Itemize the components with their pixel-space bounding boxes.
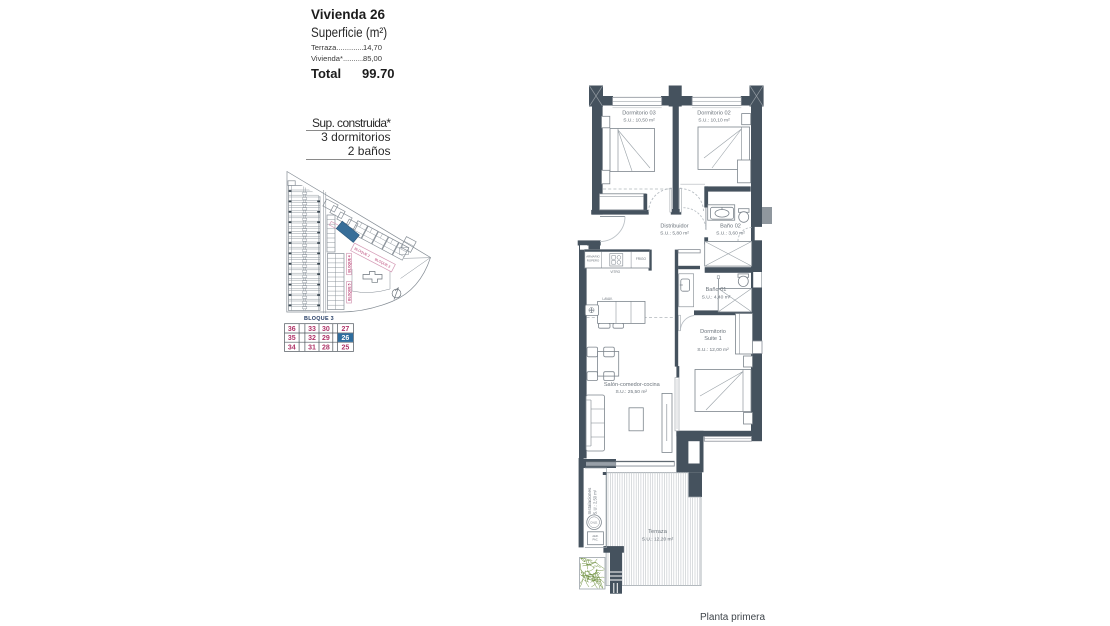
svg-text:AER.: AER. — [592, 534, 598, 538]
svg-text:32: 32 — [308, 335, 316, 342]
svg-text:Dormitorio 02: Dormitorio 02 — [697, 111, 731, 117]
svg-text:26: 26 — [342, 335, 350, 342]
svg-text:BLOQUE 5: BLOQUE 5 — [347, 283, 351, 300]
svg-text:34: 34 — [288, 344, 296, 351]
svg-text:S.U.: 3,60 m²: S.U.: 3,60 m² — [716, 231, 745, 237]
svg-text:33: 33 — [308, 326, 316, 333]
svg-text:Suite 1: Suite 1 — [704, 336, 721, 342]
svg-text:25: 25 — [342, 344, 350, 351]
svg-text:FRIGO: FRIGO — [636, 257, 647, 261]
svg-text:Salón-comedor-cocina: Salón-comedor-cocina — [604, 382, 661, 388]
svg-text:Terraza: Terraza — [648, 529, 668, 535]
svg-text:S.U.: 10,10 m²: S.U.: 10,10 m² — [698, 118, 730, 124]
svg-text:Dormitorio: Dormitorio — [700, 329, 726, 335]
svg-text:Baño 01: Baño 01 — [706, 287, 727, 293]
svg-text:S.U.: 10,50 m²: S.U.: 10,50 m² — [623, 118, 655, 124]
svg-text:CALD.: CALD. — [590, 521, 598, 525]
svg-text:VITRO: VITRO — [610, 270, 620, 274]
svg-text:31: 31 — [308, 344, 316, 351]
svg-text:S.U.: 12,20 m²: S.U.: 12,20 m² — [642, 537, 674, 543]
svg-text:S.U.: 4,40 m²: S.U.: 4,40 m² — [702, 295, 731, 301]
svg-text:Dormitorio 03: Dormitorio 03 — [622, 111, 656, 117]
svg-text:Distribuidor: Distribuidor — [660, 224, 688, 230]
svg-text:S.U.: 25,50 m²: S.U.: 25,50 m² — [616, 389, 648, 395]
svg-text:35: 35 — [288, 335, 296, 342]
svg-text:S.U.: 5,80 m²: S.U.: 5,80 m² — [660, 231, 689, 237]
svg-text:Baño 02: Baño 02 — [720, 224, 741, 230]
svg-text:BLOQUE 4: BLOQUE 4 — [347, 255, 351, 272]
svg-text:LAVAV.: LAVAV. — [602, 297, 612, 301]
svg-text:Instalaciones: Instalaciones — [587, 487, 592, 515]
svg-text:PAC.: PAC. — [592, 538, 598, 542]
svg-text:S.U.: 12,00 m²: S.U.: 12,00 m² — [697, 347, 729, 353]
svg-text:S.U.: 2,50 m²: S.U.: 2,50 m² — [593, 489, 598, 514]
svg-text:36: 36 — [288, 326, 296, 333]
svg-text:28: 28 — [322, 344, 330, 351]
svg-text:ROPERO: ROPERO — [587, 259, 600, 263]
svg-text:29: 29 — [322, 335, 330, 342]
svg-text:30: 30 — [322, 326, 330, 333]
svg-text:27: 27 — [342, 326, 350, 333]
